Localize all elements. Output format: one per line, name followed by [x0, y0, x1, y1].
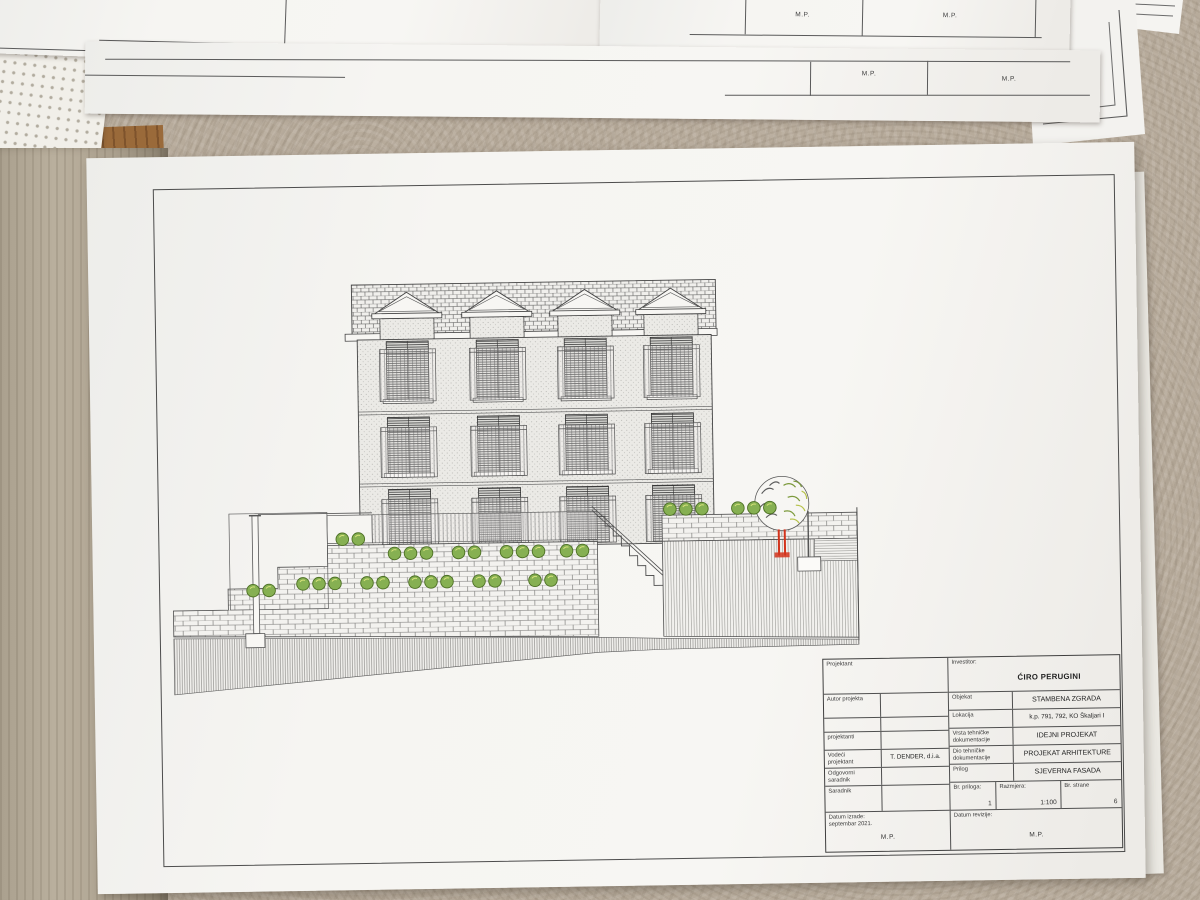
tb-razmjera-value: 1:100 — [1040, 799, 1056, 806]
tb-dio-label: Dio tehničkedokumentacije — [950, 746, 1013, 762]
garden-wall-right — [662, 507, 859, 643]
tb-vrsta-label: Vrsta tehničkedokumentacije — [950, 728, 1013, 744]
mp-stamp-label: M.P. — [880, 11, 1020, 21]
mp-stamp-label: M.P. — [823, 70, 915, 78]
tb-investitor-value: ĆIRO PERUGINI — [979, 663, 1120, 691]
tb-objekat-value: STAMBENA ZGRADA — [1013, 690, 1120, 709]
tb-lokacija-value: k.p. 791, 792, KO Škaljari I — [1013, 708, 1120, 727]
tb-dio-value: PROJEKAT ARHITEKTURE — [1014, 744, 1121, 763]
mp-stamp-label: M.P. — [940, 75, 1078, 83]
mp-stamp-label: M.P. — [826, 833, 950, 842]
mp-stamp-label: M.P. — [760, 11, 845, 20]
tb-saradnik-label: Saradnik — [825, 786, 881, 796]
tb-br-priloga-value: 1 — [988, 800, 992, 807]
tb-objekat-label: Objekat — [949, 692, 1012, 702]
tb-autor-label: Autor projekta — [824, 694, 880, 704]
tb-datum-izrade-label: Datum izrade:septembar 2021. — [826, 812, 873, 852]
tb-vodeci-label: Vodećiprojektant — [825, 750, 881, 766]
tb-projektant-label: Projektant — [823, 659, 853, 693]
north-facade-elevation-drawing — [158, 240, 889, 703]
tb-prilog-label: Prilog — [950, 764, 1013, 774]
photo-of-architectural-drawing: M.P. M.P. M.P. M.P. — [0, 0, 1200, 900]
terrace-railing — [258, 509, 597, 544]
stacked-sheet: M.P. M.P. — [85, 42, 1101, 123]
tb-odgovorni-label: Odgovornisaradnik — [825, 768, 881, 784]
tb-br-priloga-label: Br. priloga: — [950, 782, 995, 791]
tb-vrsta-value: IDEJNI PROJEKAT — [1014, 726, 1121, 745]
ground-slope — [174, 628, 860, 695]
tb-lokacija-label: Lokacija — [949, 710, 1012, 720]
main-sheet: Projektant Autor projekta projektanti Vo… — [86, 142, 1145, 894]
tb-projektanti-label: projektanti — [824, 732, 880, 742]
mp-stamp-label: M.P. — [951, 830, 1122, 840]
tb-investitor-label: Investitor: — [948, 657, 977, 691]
tb-vodeci-value: T. DENDER, d.i.a. — [882, 749, 949, 767]
tb-prilog-value: SJEVERNA FASADA — [1014, 762, 1121, 781]
tb-datum-revizije-label: Datum revizije: — [951, 810, 993, 850]
tb-razmjera-label: Razmjera: — [996, 781, 1060, 791]
tb-br-strane-value: 6 — [1114, 798, 1118, 805]
title-block: Projektant Autor projekta projektanti Vo… — [822, 654, 1123, 853]
tb-br-strane-label: Br. strane — [1061, 780, 1121, 790]
